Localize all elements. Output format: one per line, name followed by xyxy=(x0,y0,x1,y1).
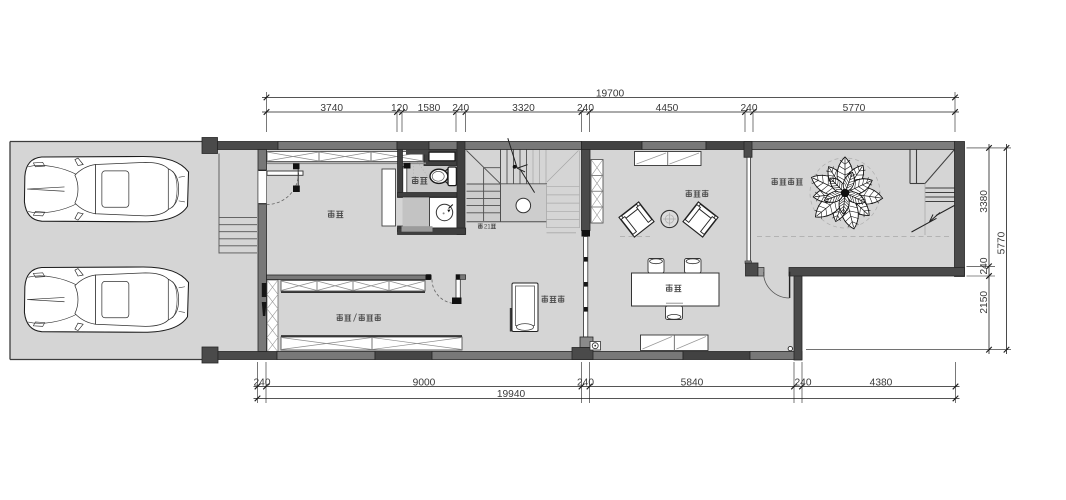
svg-text:4450: 4450 xyxy=(656,103,679,114)
svg-text:3380: 3380 xyxy=(979,190,990,213)
svg-text:2150: 2150 xyxy=(979,291,990,314)
svg-text:19700: 19700 xyxy=(596,88,625,99)
svg-text:9000: 9000 xyxy=(413,378,436,389)
svg-text:120: 120 xyxy=(391,103,408,114)
svg-text:5770: 5770 xyxy=(843,103,866,114)
svg-text:240: 240 xyxy=(452,103,469,114)
svg-text:1580: 1580 xyxy=(418,103,441,114)
svg-text:5840: 5840 xyxy=(681,378,704,389)
svg-text:240: 240 xyxy=(979,257,990,274)
svg-text:5770: 5770 xyxy=(996,231,1007,254)
svg-text:3320: 3320 xyxy=(512,103,535,114)
svg-text:240: 240 xyxy=(741,103,758,114)
svg-text:19940: 19940 xyxy=(497,389,526,400)
svg-text:3740: 3740 xyxy=(320,103,343,114)
svg-text:240: 240 xyxy=(577,103,594,114)
svg-text:240: 240 xyxy=(254,378,271,389)
svg-text:4380: 4380 xyxy=(870,378,893,389)
svg-text:240: 240 xyxy=(577,378,594,389)
svg-text:240: 240 xyxy=(795,378,812,389)
svg-text:21: 21 xyxy=(484,223,491,230)
